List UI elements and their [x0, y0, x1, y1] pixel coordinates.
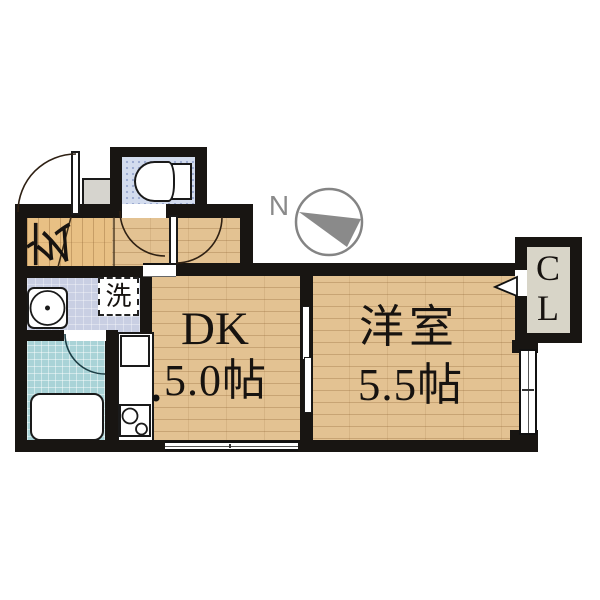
compass-circle	[296, 189, 362, 255]
window-sash-tick	[229, 444, 231, 448]
hallway-floor	[112, 216, 247, 266]
window-pane-line	[528, 351, 529, 433]
toilet-bowl	[134, 161, 175, 202]
floorplan: 洗	[0, 0, 600, 600]
closet-label-c: C	[525, 250, 571, 286]
window-sash-tick	[522, 389, 533, 391]
compass-needle	[299, 212, 361, 247]
dk-room-name: DK	[140, 306, 290, 353]
wall-segment	[110, 147, 207, 157]
western-room-floor	[311, 270, 519, 443]
entrance-door-leaf	[71, 151, 80, 215]
window-pane-line	[165, 446, 298, 447]
western-room-size: 5.5帖	[318, 363, 503, 408]
wall-segment	[195, 147, 207, 213]
compass-north-label: N	[263, 192, 295, 220]
wall-segment	[15, 330, 65, 341]
sliding-door-panel	[304, 357, 312, 413]
entrance-label: 玄	[25, 216, 79, 272]
wall-segment	[175, 263, 245, 276]
western-room-name: 洋室	[318, 305, 500, 350]
closet-label-l: L	[525, 290, 571, 326]
dk-threshold-opening	[143, 263, 176, 277]
toilet-door-opening	[122, 204, 166, 218]
western-room-window	[519, 349, 537, 435]
laundry-space: 洗	[98, 277, 139, 316]
bathroom-door-opening	[64, 330, 106, 341]
wall-segment	[570, 237, 582, 343]
wall-segment	[105, 330, 118, 452]
sliding-door-panel	[302, 306, 310, 360]
dk-window	[165, 441, 298, 451]
dk-room-size: 5.0帖	[128, 359, 303, 403]
bathtub	[30, 393, 104, 441]
stove	[119, 404, 151, 437]
laundry-label: 洗	[105, 284, 131, 310]
wall-segment	[240, 263, 520, 276]
hallway-door-leaf	[169, 215, 178, 265]
vanity-sink	[27, 287, 68, 329]
